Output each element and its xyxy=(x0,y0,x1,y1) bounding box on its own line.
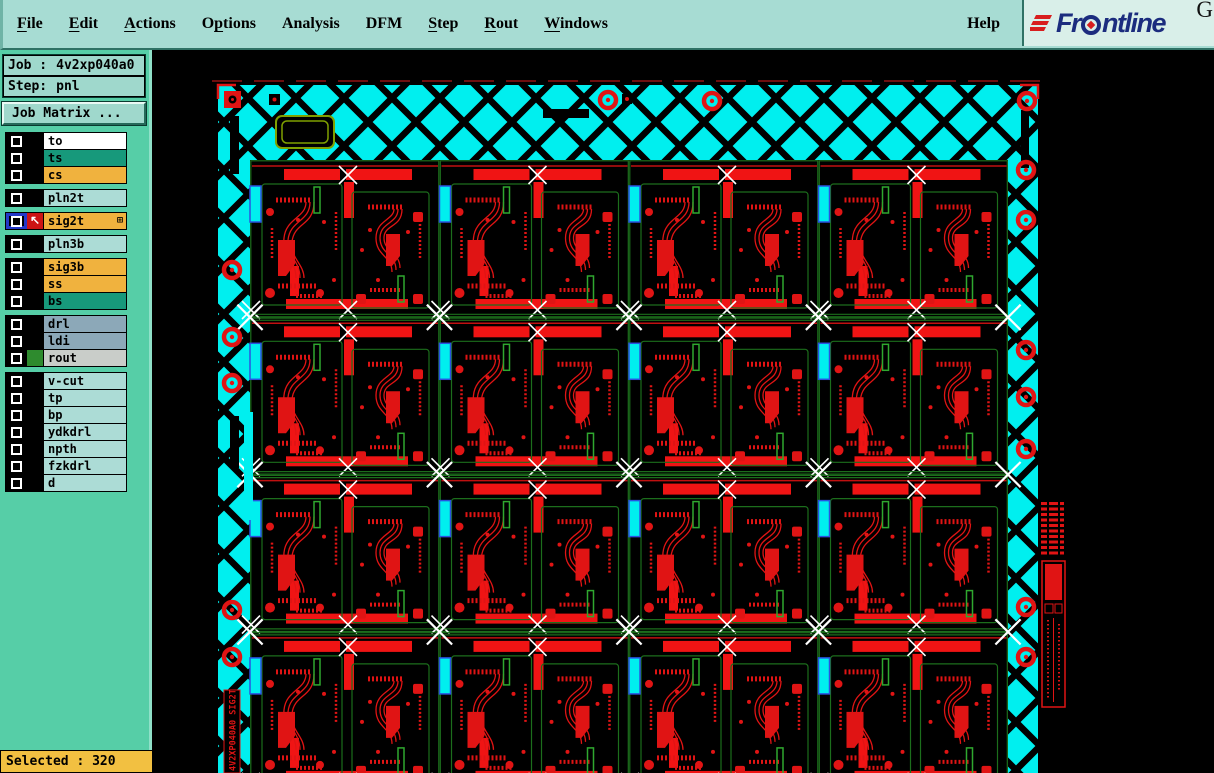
menu-item-analysis[interactable]: Analysis xyxy=(282,15,340,33)
panel-id-label: 4V2XP040A0 SIG2T xyxy=(224,689,240,773)
menu-item-edit[interactable]: Edit xyxy=(69,15,98,33)
layer-row-d[interactable]: d xyxy=(6,474,126,491)
layer-label: drl xyxy=(43,316,126,332)
layer-label: sig3b xyxy=(43,259,126,275)
tile-icon: ⊞ xyxy=(117,216,123,226)
menu-items: FileEditActionsOptionsAnalysisDFMStepRou… xyxy=(3,15,608,33)
layer-color-swatch[interactable] xyxy=(27,475,43,491)
layer-group: v-cuttpbpydkdrlnpthfzkdrld xyxy=(5,372,127,492)
frontline-speed-stripes-icon xyxy=(1030,12,1054,34)
pcb-panel-graphic: 4V2XP040A0 SIG2T xyxy=(152,50,1214,773)
layer-color-swatch[interactable] xyxy=(27,458,43,474)
layer-row-tp[interactable]: tp xyxy=(6,389,126,406)
layer-group: drlldirout xyxy=(5,315,127,367)
layer-label: to xyxy=(43,133,126,149)
layer-color-swatch[interactable] xyxy=(27,293,43,309)
layer-row-ts[interactable]: ts xyxy=(6,149,126,166)
active-layer-arrow-icon[interactable]: ↖ xyxy=(27,213,43,229)
layer-row-npth[interactable]: npth xyxy=(6,440,126,457)
layer-color-swatch[interactable] xyxy=(27,133,43,149)
job-panel: Job : 4v2xp040a0 Step: pnl xyxy=(2,54,146,98)
layer-label: rout xyxy=(43,350,126,366)
layer-group: pln2t xyxy=(5,189,127,207)
fab-table xyxy=(1041,500,1064,555)
layer-row-cs[interactable]: cs xyxy=(6,166,126,183)
menu-item-windows[interactable]: Windows xyxy=(544,15,608,33)
job-field: Job : 4v2xp040a0 xyxy=(3,55,145,76)
layer-visibility-checkbox[interactable] xyxy=(6,150,27,166)
frontline-logo: Frntline xyxy=(1056,10,1165,37)
frontline-logo-o-icon xyxy=(1081,15,1101,35)
layer-label: ldi xyxy=(43,333,126,349)
layer-visibility-checkbox[interactable] xyxy=(6,236,27,252)
layer-color-swatch[interactable] xyxy=(27,373,43,389)
layer-row-fzkdrl[interactable]: fzkdrl xyxy=(6,457,126,474)
layer-label: bs xyxy=(43,293,126,309)
layer-color-swatch[interactable] xyxy=(27,350,43,366)
menu-item-dfm[interactable]: DFM xyxy=(366,15,402,33)
layer-row-to[interactable]: to xyxy=(6,133,126,149)
layer-row-sig2t[interactable]: ↖sig2t⊞ xyxy=(6,213,126,229)
layer-visibility-checkbox[interactable] xyxy=(6,133,27,149)
panel-id-text: 4V2XP040A0 SIG2T xyxy=(229,689,239,771)
layer-visibility-checkbox[interactable] xyxy=(6,316,27,332)
step-value: pnl xyxy=(56,79,79,94)
layer-visibility-checkbox[interactable] xyxy=(6,458,27,474)
layer-visibility-checkbox[interactable] xyxy=(6,373,27,389)
layer-row-rout[interactable]: rout xyxy=(6,349,126,366)
layer-color-swatch[interactable] xyxy=(27,424,43,440)
layer-label: npth xyxy=(43,441,126,457)
layer-visibility-checkbox[interactable] xyxy=(6,190,27,206)
layer-label: v-cut xyxy=(43,373,126,389)
step-field: Step: pnl xyxy=(3,76,145,97)
brand-panel: Frntline G xyxy=(1022,0,1214,46)
layer-row-bs[interactable]: bs xyxy=(6,292,126,309)
layer-visibility-checkbox[interactable] xyxy=(6,167,27,183)
layer-label: tp xyxy=(43,390,126,406)
layer-color-swatch[interactable] xyxy=(27,316,43,332)
layer-group: pln3b xyxy=(5,235,127,253)
layer-color-swatch[interactable] xyxy=(27,333,43,349)
layer-label: pln2t xyxy=(43,190,126,206)
layer-row-v-cut[interactable]: v-cut xyxy=(6,373,126,389)
layer-label: ydkdrl xyxy=(43,424,126,440)
layer-color-swatch[interactable] xyxy=(27,236,43,252)
layer-color-swatch[interactable] xyxy=(27,190,43,206)
menu-bar: FileEditActionsOptionsAnalysisDFMStepRou… xyxy=(0,0,1214,50)
layer-row-bp[interactable]: bp xyxy=(6,406,126,423)
sidebar: Job : 4v2xp040a0 Step: pnl Job Matrix ..… xyxy=(0,50,152,773)
layer-visibility-checkbox[interactable] xyxy=(6,424,27,440)
job-value: 4v2xp040a0 xyxy=(56,58,134,73)
job-label: Job : xyxy=(8,58,47,73)
menu-item-rout[interactable]: Rout xyxy=(484,15,518,33)
menu-item-options[interactable]: Options xyxy=(202,15,256,33)
layer-color-swatch[interactable] xyxy=(27,390,43,406)
menu-right: Help Frntline G xyxy=(967,0,1214,48)
layer-visibility-checkbox[interactable] xyxy=(6,350,27,366)
layer-group: ↖sig2t⊞ xyxy=(5,212,127,230)
layer-visibility-checkbox[interactable] xyxy=(6,475,27,491)
layer-row-pln2t[interactable]: pln2t xyxy=(6,190,126,206)
layer-visibility-checkbox[interactable] xyxy=(6,259,27,275)
layer-list: totscspln2t↖sig2t⊞pln3bsig3bssbsdrlldiro… xyxy=(0,132,149,492)
job-matrix-button[interactable]: Job Matrix ... xyxy=(2,102,146,125)
layer-visibility-checkbox[interactable] xyxy=(6,407,27,423)
step-label: Step: xyxy=(8,79,47,94)
layer-color-swatch[interactable] xyxy=(27,276,43,292)
layer-color-swatch[interactable] xyxy=(27,441,43,457)
layer-row-pln3b[interactable]: pln3b xyxy=(6,236,126,252)
menu-item-step[interactable]: Step xyxy=(428,15,458,33)
title-block xyxy=(1042,561,1065,707)
layer-visibility-checkbox[interactable] xyxy=(6,276,27,292)
layer-label: pln3b xyxy=(43,236,126,252)
layer-row-ss[interactable]: ss xyxy=(6,275,126,292)
layer-visibility-checkbox[interactable] xyxy=(6,333,27,349)
layer-visibility-checkbox[interactable] xyxy=(6,390,27,406)
layer-color-swatch[interactable] xyxy=(27,167,43,183)
layer-group: sig3bssbs xyxy=(5,258,127,310)
brand-suffix-letter: G xyxy=(1196,0,1213,23)
menu-item-file[interactable]: File xyxy=(17,15,43,33)
menu-item-help[interactable]: Help xyxy=(967,15,1000,33)
layer-color-swatch[interactable] xyxy=(27,150,43,166)
layer-color-swatch[interactable] xyxy=(27,407,43,423)
layer-label: fzkdrl xyxy=(43,458,126,474)
layer-label: bp xyxy=(43,407,126,423)
layer-label: d xyxy=(43,475,126,491)
layer-row-drl[interactable]: drl xyxy=(6,316,126,332)
layer-visibility-checkbox[interactable] xyxy=(6,441,27,457)
layer-row-sig3b[interactable]: sig3b xyxy=(6,259,126,275)
layer-label: ts xyxy=(43,150,126,166)
layer-label: sig2t⊞ xyxy=(43,213,126,229)
layer-label: cs xyxy=(43,167,126,183)
layer-label: ss xyxy=(43,276,126,292)
layer-row-ydkdrl[interactable]: ydkdrl xyxy=(6,423,126,440)
layer-visibility-checkbox[interactable] xyxy=(6,293,27,309)
layer-color-swatch[interactable] xyxy=(27,259,43,275)
layer-row-ldi[interactable]: ldi xyxy=(6,332,126,349)
layer-group: totscs xyxy=(5,132,127,184)
pcb-viewport[interactable]: 4V2XP040A0 SIG2T xyxy=(152,50,1214,773)
selected-count: Selected : 320 xyxy=(0,750,160,773)
layer-visibility-checkbox[interactable] xyxy=(6,213,27,229)
menu-item-actions[interactable]: Actions xyxy=(124,15,176,33)
